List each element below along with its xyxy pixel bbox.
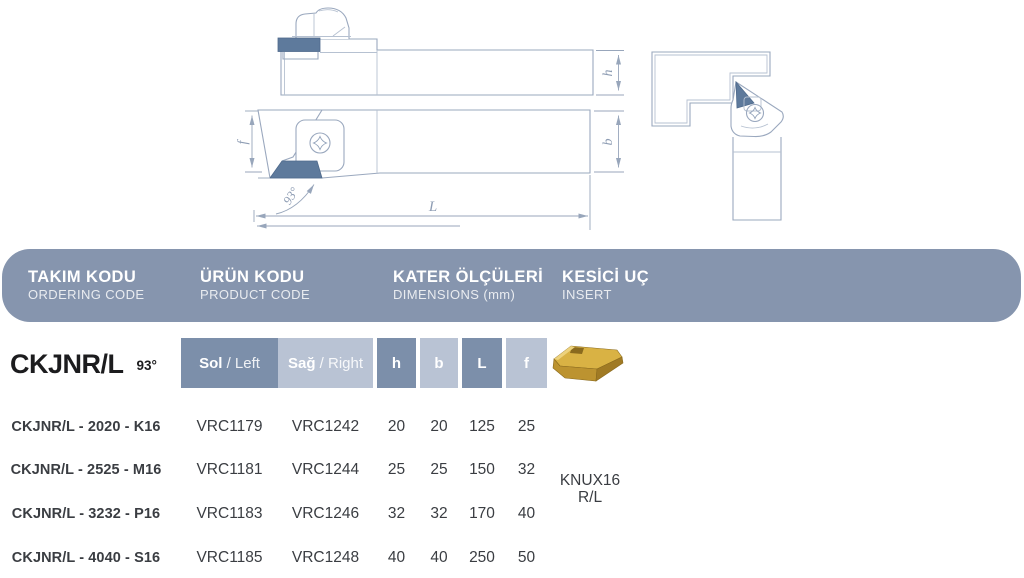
side-view-drawing: h — [278, 8, 624, 95]
insert-hand: R/L — [550, 489, 630, 506]
column-title-en: ORDERING CODE — [28, 287, 144, 303]
cell-f: 25 — [506, 416, 547, 438]
catalog-page: { "header": { "columns": [ {"tr": "TAKIM… — [0, 0, 1024, 578]
header-col-insert: KESİCİ UÇ INSERT — [562, 268, 649, 303]
header-col-dimensions: KATER ÖLÇÜLERİ DIMENSIONS (mm) — [393, 268, 543, 303]
sol-label-rest: / Left — [222, 355, 260, 372]
insert-type-label: KNUX16 R/L — [550, 472, 630, 506]
sag-label-bold: Sağ — [288, 355, 316, 372]
top-view-drawing: f b L 93° — [236, 110, 625, 230]
series-angle: 93° — [137, 358, 157, 373]
subheader-cell-sol: Sol / Left — [181, 338, 278, 388]
cell-left-code: VRC1183 — [181, 503, 278, 525]
cell-b: 32 — [420, 503, 458, 525]
cell-ordering-code: CKJNR/L - 2020 - K16 — [0, 416, 172, 438]
subheader-cell-h: h — [377, 338, 416, 388]
column-title-en: PRODUCT CODE — [200, 287, 310, 303]
subheader-cell-f: f — [506, 338, 547, 388]
dim-b-label: b — [601, 139, 616, 146]
cell-l: 250 — [462, 547, 502, 569]
cell-right-code: VRC1248 — [278, 547, 373, 569]
angle-93-label: 93° — [280, 185, 301, 207]
subheader-cell-b: b — [420, 338, 458, 388]
column-title-tr: KATER ÖLÇÜLERİ — [393, 268, 543, 287]
column-title-tr: KESİCİ UÇ — [562, 268, 649, 287]
cell-b: 20 — [420, 416, 458, 438]
header-col-ordering-code: TAKIM KODU ORDERING CODE — [28, 268, 144, 303]
dim-f-label: f — [236, 138, 251, 144]
insert-photo — [546, 340, 630, 386]
series-title-block: CKJNR/L93° — [10, 349, 180, 380]
sag-label-rest: / Right — [315, 355, 363, 372]
cell-l: 125 — [462, 416, 502, 438]
header-col-product-code: ÜRÜN KODU PRODUCT CODE — [200, 268, 310, 303]
insert-name: KNUX16 — [550, 472, 630, 489]
cell-ordering-code: CKJNR/L - 3232 - P16 — [0, 503, 172, 525]
dim-L — [254, 175, 590, 230]
cell-f: 40 — [506, 503, 547, 525]
subheader-cell-sag: Sağ / Right — [278, 338, 373, 388]
cell-h: 20 — [377, 416, 416, 438]
cell-ordering-code: CKJNR/L - 2525 - M16 — [0, 459, 172, 481]
subheader-cell-l: L — [462, 338, 502, 388]
column-title-en: INSERT — [562, 287, 649, 303]
header-band: TAKIM KODU ORDERING CODE ÜRÜN KODU PRODU… — [2, 249, 1021, 322]
cell-h: 32 — [377, 503, 416, 525]
cell-l: 150 — [462, 459, 502, 481]
cell-h: 40 — [377, 547, 416, 569]
cell-left-code: VRC1185 — [181, 547, 278, 569]
cell-left-code: VRC1179 — [181, 416, 278, 438]
technical-drawings: h f b L — [0, 0, 1024, 246]
column-title-tr: TAKIM KODU — [28, 268, 144, 287]
cell-right-code: VRC1242 — [278, 416, 373, 438]
cell-b: 40 — [420, 547, 458, 569]
dim-L-label: L — [428, 199, 437, 215]
cell-l: 170 — [462, 503, 502, 525]
insert-side-fill — [278, 38, 320, 52]
column-title-tr: ÜRÜN KODU — [200, 268, 310, 287]
series-code: CKJNR/L — [10, 349, 124, 380]
cell-b: 25 — [420, 459, 458, 481]
cell-left-code: VRC1181 — [181, 459, 278, 481]
column-title-en: DIMENSIONS (mm) — [393, 287, 543, 303]
end-view-drawing — [652, 52, 783, 220]
cell-f: 50 — [506, 547, 547, 569]
cell-ordering-code: CKJNR/L - 4040 - S16 — [0, 547, 172, 569]
cell-h: 25 — [377, 459, 416, 481]
cell-right-code: VRC1246 — [278, 503, 373, 525]
dim-h-label: h — [601, 70, 616, 77]
sol-label-bold: Sol — [199, 355, 222, 372]
cell-right-code: VRC1244 — [278, 459, 373, 481]
cell-f: 32 — [506, 459, 547, 481]
